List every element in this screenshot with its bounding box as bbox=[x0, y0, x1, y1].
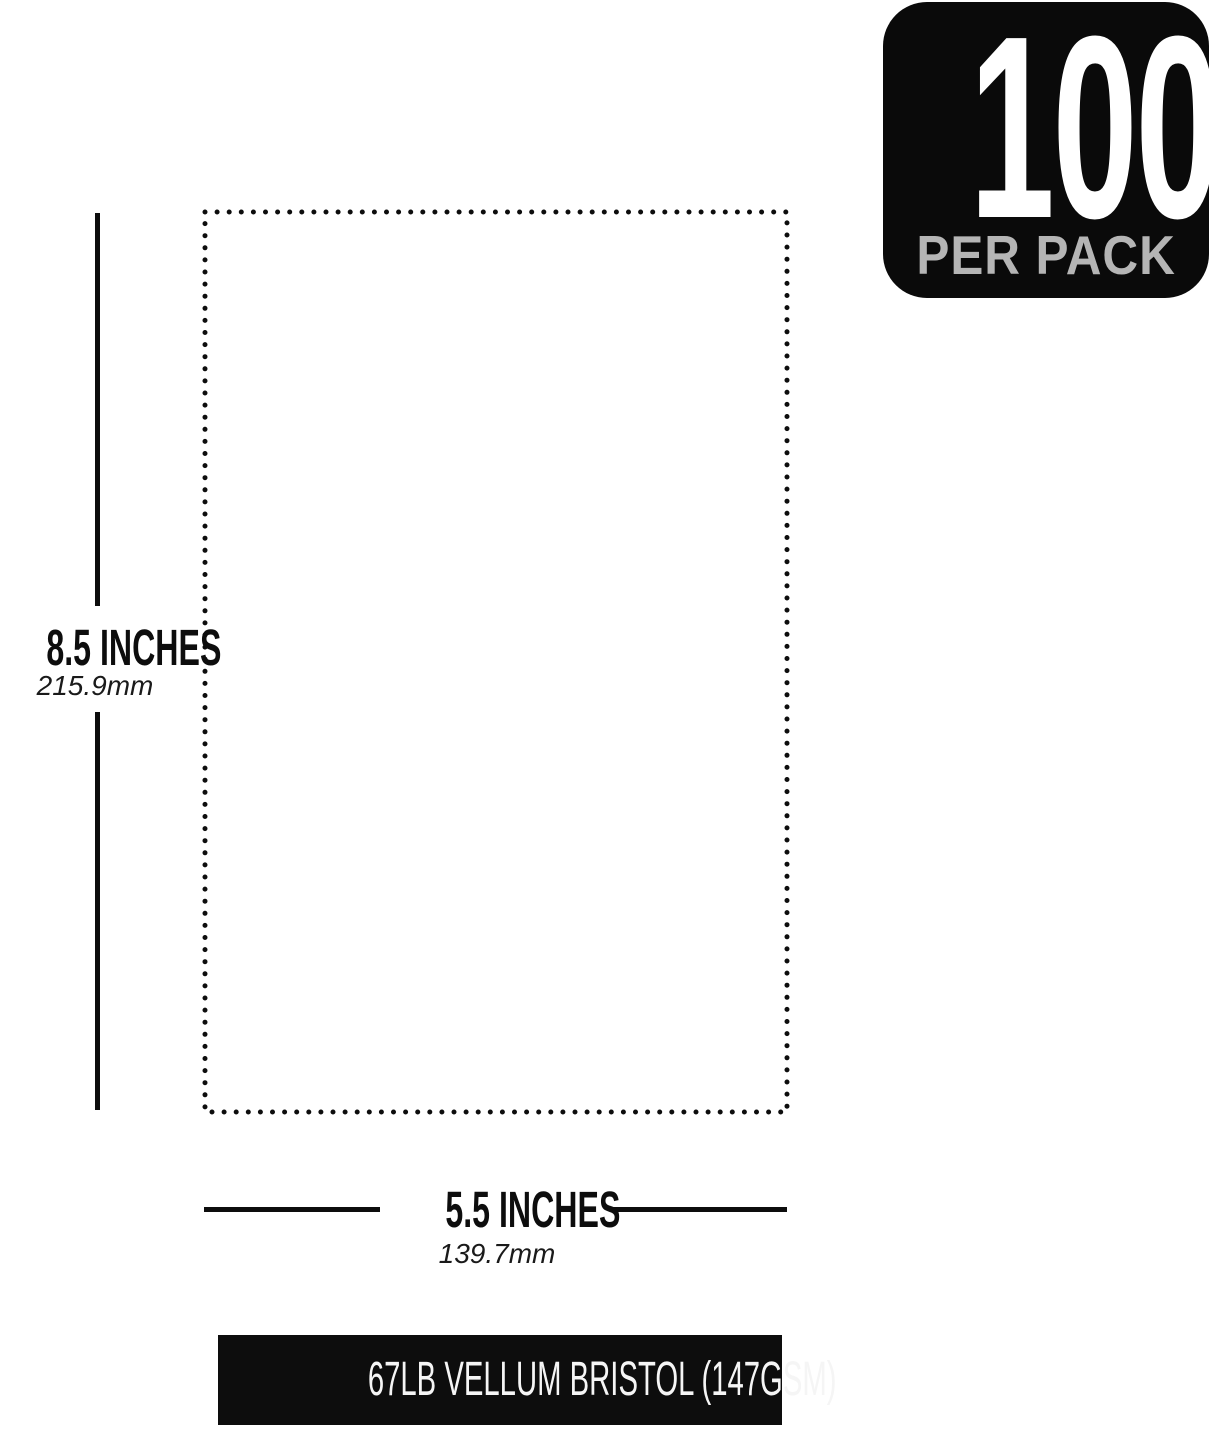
height-metric-label: 215.9mm bbox=[0, 672, 195, 700]
paper-sheet-outline bbox=[202, 209, 790, 1115]
pack-count-label: PER PACK bbox=[883, 228, 1209, 283]
pack-count-value: 100 bbox=[969, 0, 1214, 258]
width-label: 5.5 INCHES bbox=[394, 1184, 594, 1235]
height-dimension-line-bottom bbox=[95, 712, 100, 1110]
width-metric-label: 139.7mm bbox=[397, 1240, 597, 1268]
paper-stock-banner: 67LB VELLUM BRISTOL (147GSM) bbox=[218, 1335, 782, 1425]
product-dimension-diagram: 100 PER PACK 8.5 INCHES 215.9mm 5.5 INCH… bbox=[0, 0, 1214, 1432]
height-label: 8.5 INCHES bbox=[0, 622, 195, 673]
height-dimension-line-top bbox=[95, 213, 100, 606]
width-label-text: 5.5 INCHES bbox=[445, 1184, 620, 1235]
per-pack-badge: 100 PER PACK bbox=[883, 2, 1209, 298]
width-dimension-line-right bbox=[612, 1207, 787, 1212]
pack-count-label-text: PER PACK bbox=[916, 228, 1175, 283]
width-dimension-line-left bbox=[204, 1207, 380, 1212]
height-label-text: 8.5 INCHES bbox=[46, 622, 221, 673]
paper-stock-text: 67LB VELLUM BRISTOL (147GSM) bbox=[368, 1335, 837, 1425]
pack-count: 100 bbox=[883, 0, 1209, 258]
